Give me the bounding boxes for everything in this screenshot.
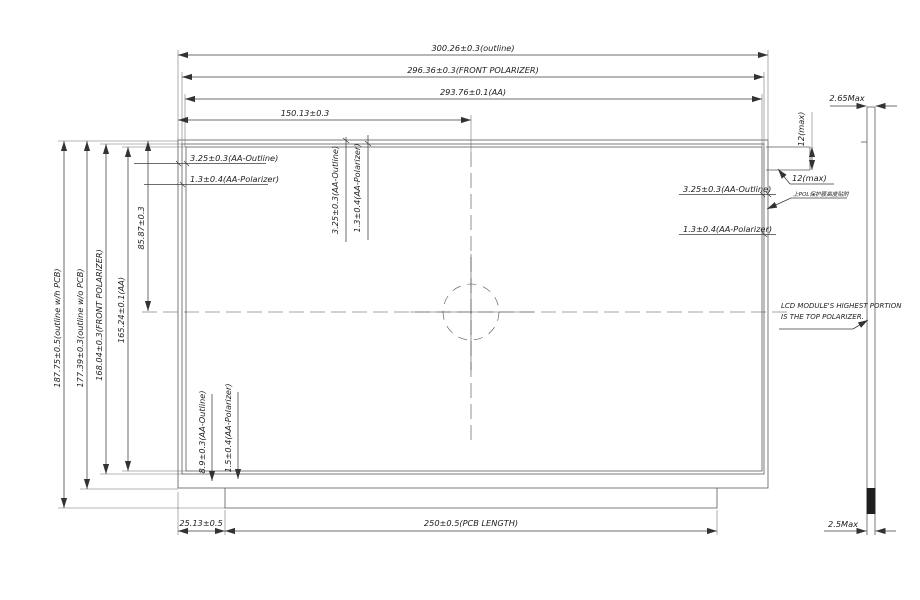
dim-pcb-offset: 25.13±0.5	[179, 518, 222, 528]
margin-right-aa-outline: 3.25±0.3(AA-Outline)	[683, 184, 771, 194]
margin-right-aa-polarizer: 1.3±0.4(AA-Polarizer)	[683, 224, 772, 234]
pcb-outline	[225, 488, 717, 508]
front-polarizer-outline	[182, 144, 764, 474]
margin-bottom-aa-polarizer: 1.5±0.4(AA-Polarizer)	[223, 383, 233, 472]
highest-portion-note-line2: IS THE TOP POLARIZER.	[781, 313, 864, 321]
margin-top-left-aa-outline: 3.25±0.3(AA-Outline)	[190, 153, 278, 163]
dim-polarizer-width: 296.36±0.3(FRONT POLARIZER)	[407, 65, 539, 75]
callouts-top-center: 3.25±0.3(AA-Outline) 1.3±0.4(AA-Polarize…	[330, 135, 371, 242]
tab-height-label: 12(max)	[796, 112, 806, 147]
dim-aa-height: 165.24±0.1(AA)	[116, 277, 126, 343]
drawing-canvas: 300.26±0.3(outline) 296.36±0.3(FRONT POL…	[0, 0, 920, 600]
active-area-outline	[186, 147, 762, 471]
callouts-bottom-left: 8.9±0.3(AA-Outline) 1.5±0.4(AA-Polarizer…	[197, 383, 238, 481]
side-profile-view: 2.65Max 2.5Max LCD MODULE'S HIGHEST PORT…	[779, 93, 902, 535]
margin-bottom-aa-outline: 8.9±0.3(AA-Outline)	[197, 390, 207, 473]
module-front-view	[178, 140, 768, 508]
tab-width-label: 12(max)	[792, 173, 827, 183]
lcd-module-outline-drawing: 300.26±0.3(outline) 296.36±0.3(FRONT POL…	[0, 0, 920, 600]
thickness-bottom-label: 2.5Max	[828, 519, 858, 529]
margin-top-center-aa-outline: 3.25±0.3(AA-Outline)	[330, 146, 340, 234]
dim-outline-width: 300.26±0.3(outline)	[431, 43, 514, 53]
pcb-side-view	[867, 488, 876, 514]
callouts-top-left: 3.25±0.3(AA-Outline) 1.3±0.4(AA-Polarize…	[134, 153, 279, 187]
margin-top-center-aa-polarizer: 1.3±0.4(AA-Polarizer)	[352, 143, 362, 232]
top-dimensions: 300.26±0.3(outline) 296.36±0.3(FRONT POL…	[178, 43, 768, 152]
module-outline	[178, 140, 768, 488]
center-marks	[142, 152, 792, 440]
tab-note-chinese: 上POL保护膜高度贴附	[793, 191, 850, 198]
dim-half-height: 85.87±0.3	[136, 206, 146, 249]
film-tab-detail: 12(max) 12(max) 上POL保护膜高度贴附	[766, 112, 850, 209]
callouts-right: 3.25±0.3(AA-Outline) 1.3±0.4(AA-Polarize…	[679, 184, 776, 237]
dim-aa-width: 293.76±0.1(AA)	[440, 87, 506, 97]
highest-portion-note-line1: LCD MODULE'S HIGHEST PORTION	[781, 302, 902, 310]
dim-half-width: 150.13±0.3	[281, 108, 330, 118]
thickness-top-label: 2.65Max	[829, 93, 864, 103]
margin-top-left-aa-polarizer: 1.3±0.4(AA-Polarizer)	[190, 174, 279, 184]
dim-outline-height-with-pcb: 187.75±0.5(outline w/h PCB)	[52, 268, 62, 387]
bottom-dimensions: 25.13±0.5 250±0.5(PCB LENGTH)	[178, 492, 717, 535]
dim-outline-height-without-pcb: 177.39±0.3(outline w/o PCB)	[75, 268, 85, 387]
dim-pcb-length: 250±0.5(PCB LENGTH)	[424, 518, 518, 528]
dim-polarizer-height: 168.04±0.3(FRONT POLARIZER)	[94, 249, 104, 381]
